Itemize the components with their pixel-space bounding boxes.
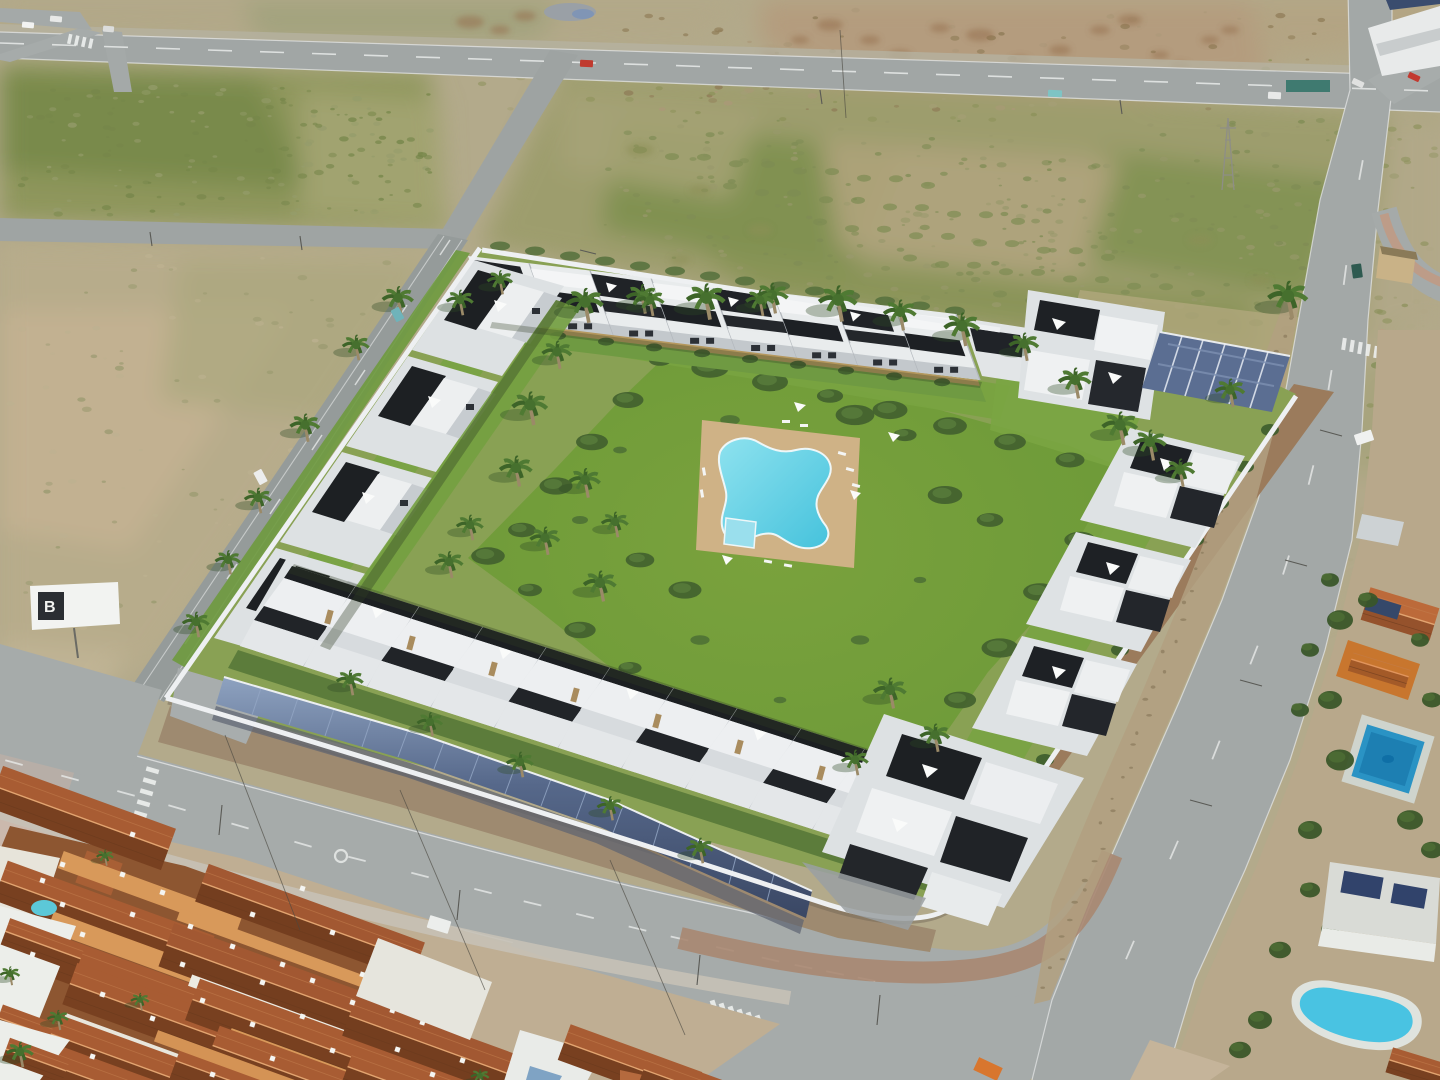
- svg-text:B: B: [44, 599, 56, 616]
